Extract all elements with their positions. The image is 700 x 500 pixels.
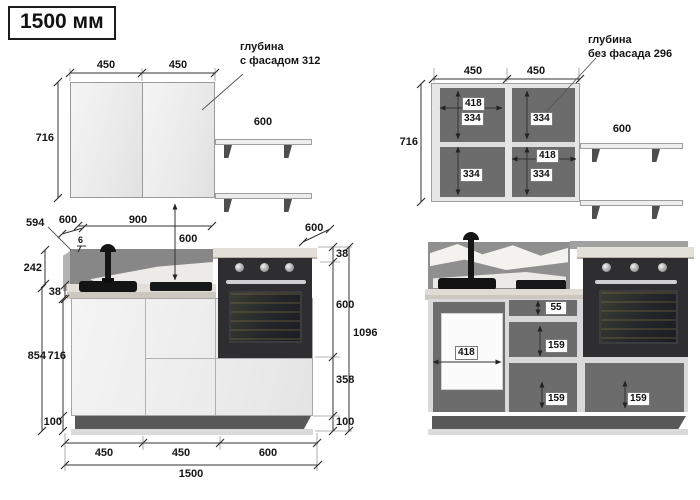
dim-mid-drawer: 159 — [545, 339, 568, 353]
shelf-bracket — [284, 199, 292, 212]
dim-bottom-w3: 600 — [250, 447, 286, 460]
dim-drawer-height: 358 — [336, 374, 354, 387]
dim-total-width: 1500 — [171, 468, 211, 481]
dim-right-depth: 600 — [305, 222, 323, 235]
faucet — [468, 236, 474, 282]
shelf-bracket — [592, 206, 600, 219]
dim-height-with-counter: 854 — [24, 350, 46, 363]
wall-shelf-bottom — [580, 200, 683, 206]
depth-note-line1: глубина — [240, 40, 284, 54]
page-title: 1500 мм — [8, 6, 116, 40]
door-divider — [145, 299, 146, 415]
dim-top-drawer: 55 — [545, 301, 567, 315]
dim-upper-open-height: 716 — [392, 136, 418, 149]
depth-note-line2: без фасада 296 — [588, 47, 672, 61]
wall-shelf-top — [215, 139, 312, 145]
dim-shelf-width: 600 — [604, 123, 640, 136]
dim-panel-thickness: 6 — [78, 235, 83, 245]
dim-upper-height: 716 — [26, 132, 54, 145]
shelf-bracket — [652, 149, 660, 162]
oven-knob — [630, 263, 639, 272]
dim-top-depth: 600 — [56, 214, 80, 227]
depth-note-line2: с фасадом 312 — [240, 54, 320, 68]
dim-inner-height-right-bottom: 334 — [530, 168, 553, 182]
faucet-base — [102, 278, 114, 283]
plinth-base — [71, 429, 313, 435]
dim-upper-open-width-left: 450 — [455, 65, 491, 78]
oven-knob — [658, 263, 667, 272]
door-divider — [215, 299, 216, 415]
dim-inner-width-left: 418 — [462, 97, 485, 111]
cabinet-shelf-right — [512, 142, 575, 147]
oven-knob — [602, 263, 611, 272]
dim-inner-height-left-top: 334 — [461, 112, 484, 126]
dim-opening-width: 418 — [455, 346, 478, 360]
dim-counter-thickness-right: 38 — [336, 248, 348, 261]
dim-upper-width-left: 450 — [88, 59, 124, 72]
dim-bottom-drawer: 159 — [545, 392, 568, 406]
dim-oven-height: 600 — [336, 299, 354, 312]
shelf-bracket — [224, 199, 232, 212]
dim-corner-depth: 594 — [26, 217, 44, 230]
dim-bottom-w2: 450 — [163, 447, 199, 460]
plinth-base — [428, 429, 688, 435]
cabinet-shelf-left — [440, 142, 505, 147]
dim-counter-thickness-left: 38 — [41, 286, 61, 299]
dim-splash-height: 242 — [20, 262, 42, 275]
depth-note-line1: глубина — [588, 33, 632, 47]
wall-shelf-bottom — [215, 193, 312, 199]
oven-handle — [595, 280, 677, 284]
shelf-bracket — [592, 149, 600, 162]
dim-span: 900 — [120, 214, 156, 227]
dim-bottom-w1: 450 — [86, 447, 122, 460]
dim-inner-height-left-bottom: 334 — [460, 168, 483, 182]
shelf-bracket — [224, 145, 232, 158]
dim-plinth-right: 100 — [336, 416, 354, 429]
dim-upper-open-width-right: 450 — [518, 65, 554, 78]
dim-total-height: 1096 — [353, 327, 377, 340]
dim-box-height: 716 — [46, 350, 66, 363]
upper-cabinet-door-left — [70, 82, 143, 198]
dim-right-drawer: 159 — [627, 392, 650, 406]
plinth — [432, 416, 686, 429]
dim-plinth-left: 100 — [40, 416, 62, 429]
plinth — [75, 416, 311, 429]
dim-wall-gap: 600 — [179, 233, 197, 246]
dim-shelf-width: 600 — [245, 116, 281, 129]
dim-inner-width-right: 418 — [536, 149, 559, 163]
oven-knob — [260, 263, 269, 272]
drawer-divider — [145, 358, 312, 359]
wall-shelf-top — [580, 143, 683, 149]
cooktop — [150, 282, 212, 291]
oven-knob — [285, 263, 294, 272]
shelf-bracket — [284, 145, 292, 158]
oven-window — [229, 291, 302, 343]
oven-handle — [226, 280, 306, 284]
upper-cabinet-door-right — [142, 82, 215, 198]
faucet — [105, 248, 111, 282]
dim-inner-height-right-top: 334 — [530, 112, 553, 126]
kitchen-drawing: 1500 мм 450 450 716 600 глубина с фасадо… — [0, 0, 700, 500]
oven-knob — [235, 263, 244, 272]
oven-window — [599, 290, 678, 344]
shelf-bracket — [652, 206, 660, 219]
dim-upper-width-right: 450 — [160, 59, 196, 72]
